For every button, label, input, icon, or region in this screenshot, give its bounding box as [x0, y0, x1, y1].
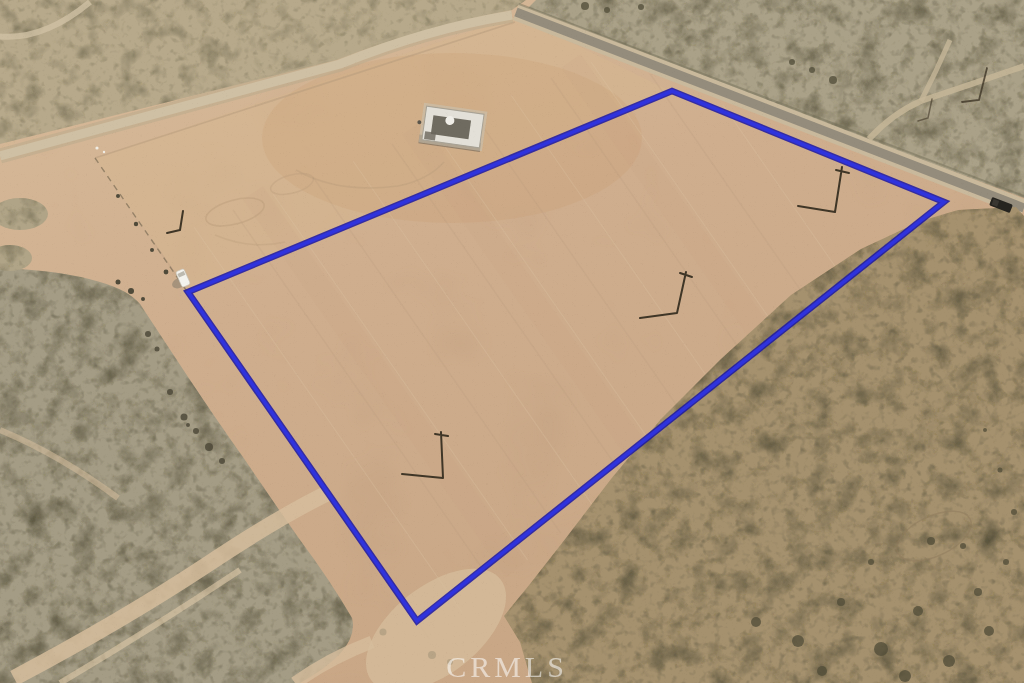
aerial-listing-photo: CRMLS [0, 0, 1024, 683]
photo-grain [0, 0, 1024, 683]
crmls-watermark: CRMLS [446, 650, 568, 683]
aerial-photo-canvas: CRMLS [0, 0, 1024, 683]
